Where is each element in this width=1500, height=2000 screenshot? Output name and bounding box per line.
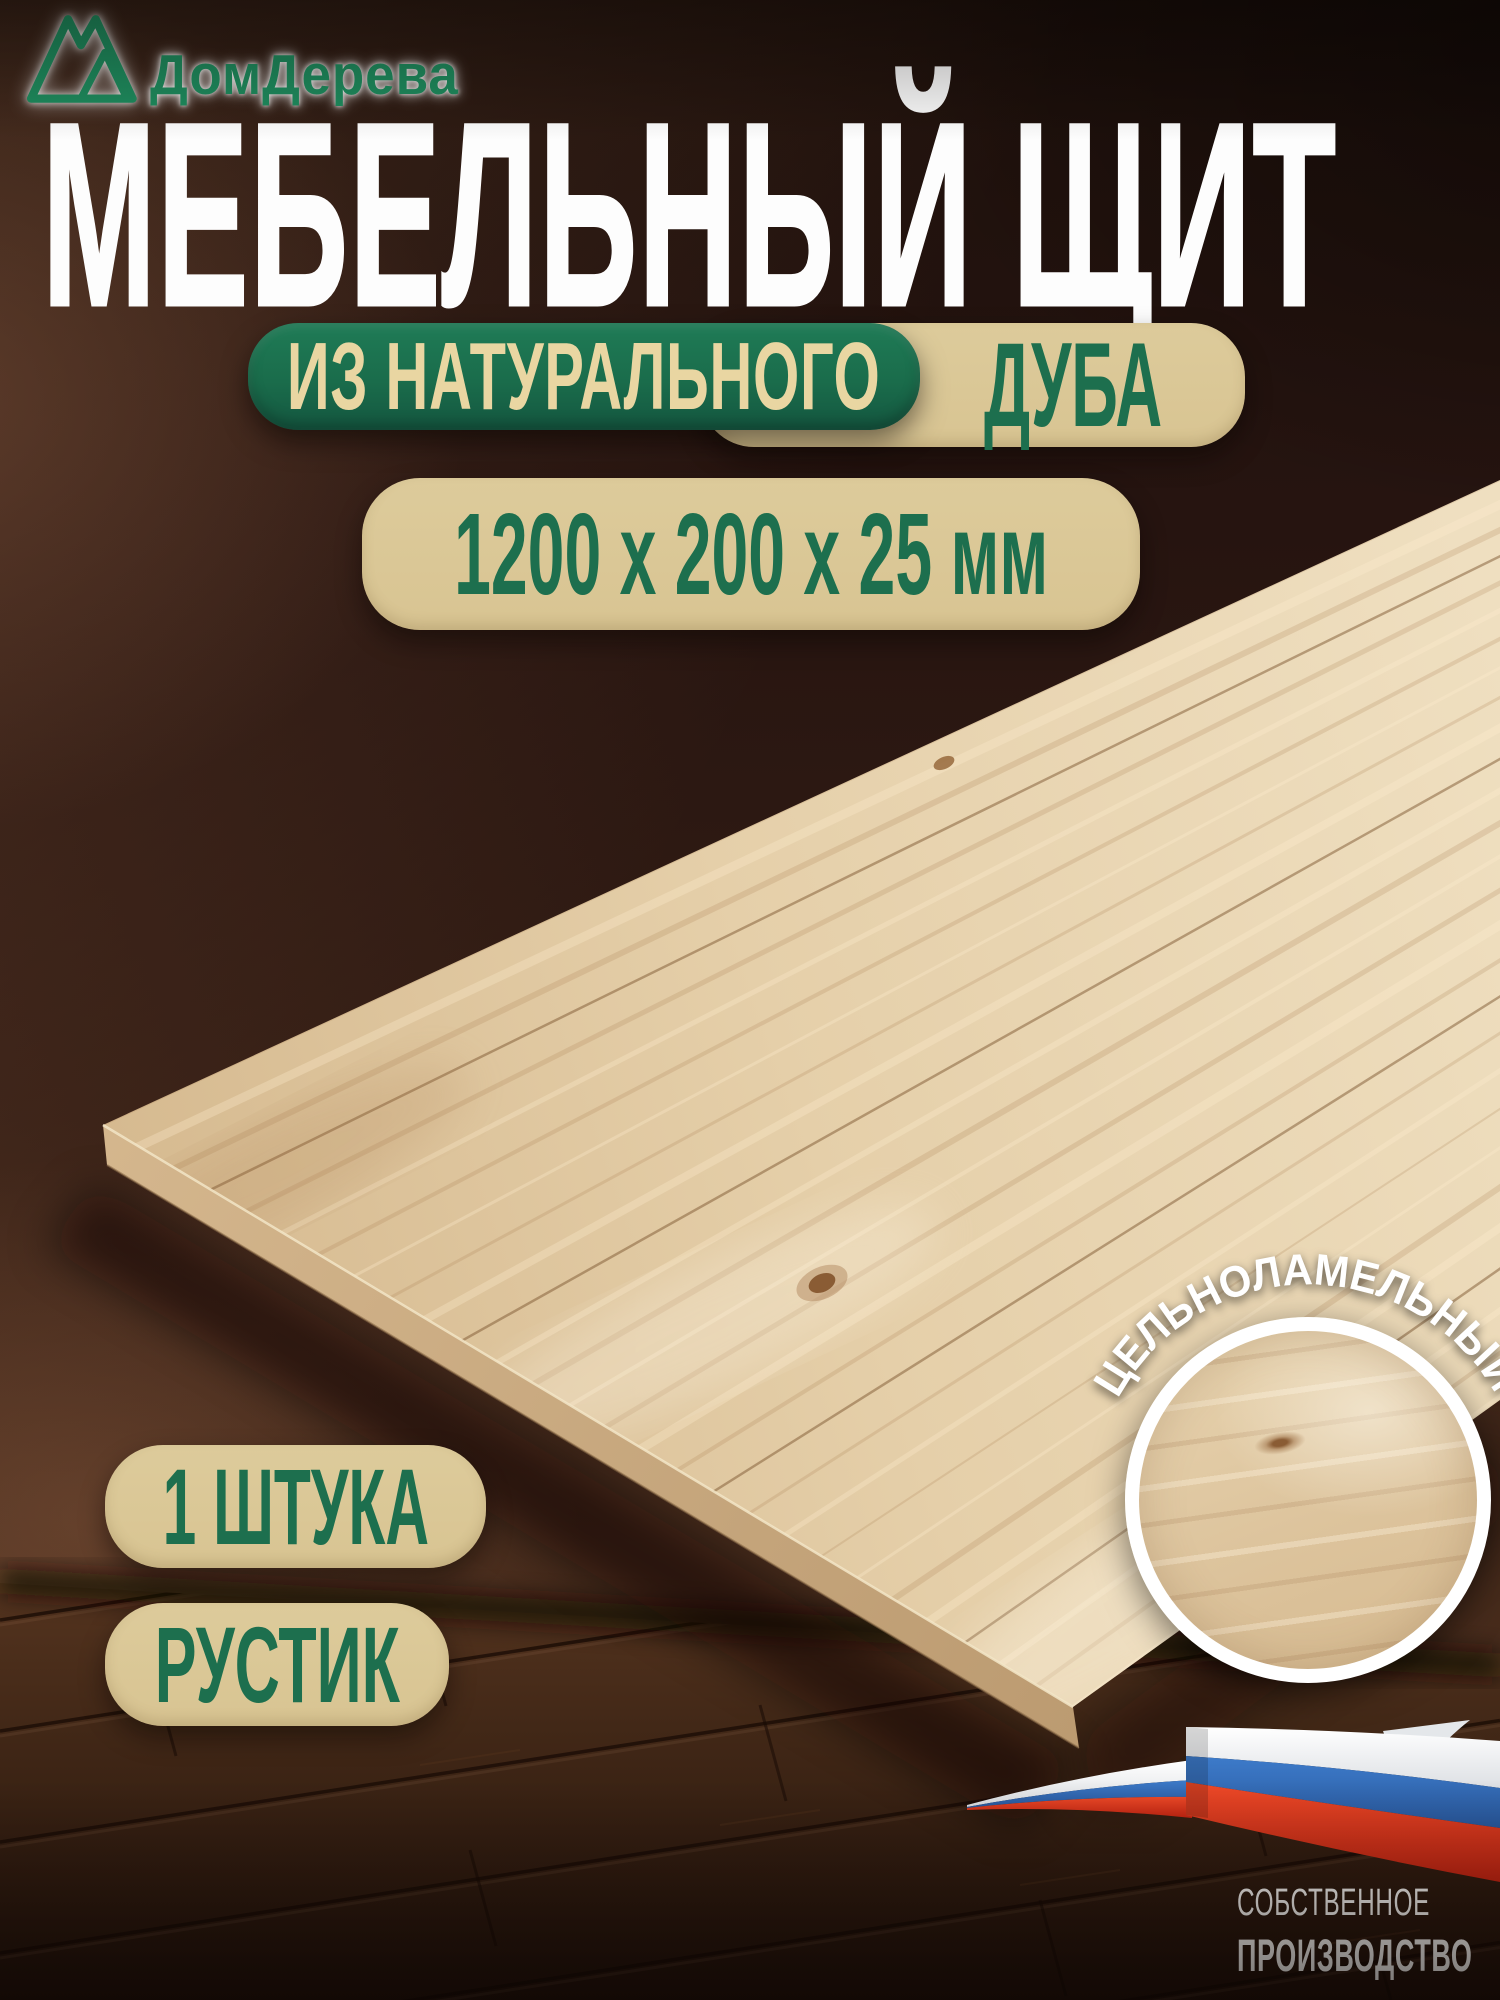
product-card: ДомДерева МЕБЕЛЬНЫЙ ЩИТ ИЗ НАТУРАЛЬНОГО … <box>0 0 1500 2000</box>
badge-quantity: 1 ШТУКА <box>105 1445 486 1568</box>
origin-line1: СОБСТВЕННОЕ <box>1237 1884 1488 1924</box>
wood-knot <box>1252 1428 1307 1459</box>
badge-material-prefix: ИЗ НАТУРАЛЬНОГО <box>248 323 920 430</box>
badge-dimensions: 1200 x 200 x 25 мм <box>362 478 1140 630</box>
page-title: МЕБЕЛЬНЫЙ ЩИТ <box>42 84 1337 346</box>
origin-line2: ПРОИЗВОДСТВО <box>1237 1932 1472 1979</box>
badge-grade: РУСТИК <box>105 1603 449 1726</box>
detail-magnifier <box>1125 1317 1491 1683</box>
production-origin: СОБСТВЕННОЕ ПРОИЗВОДСТВО <box>1237 1884 1500 1979</box>
